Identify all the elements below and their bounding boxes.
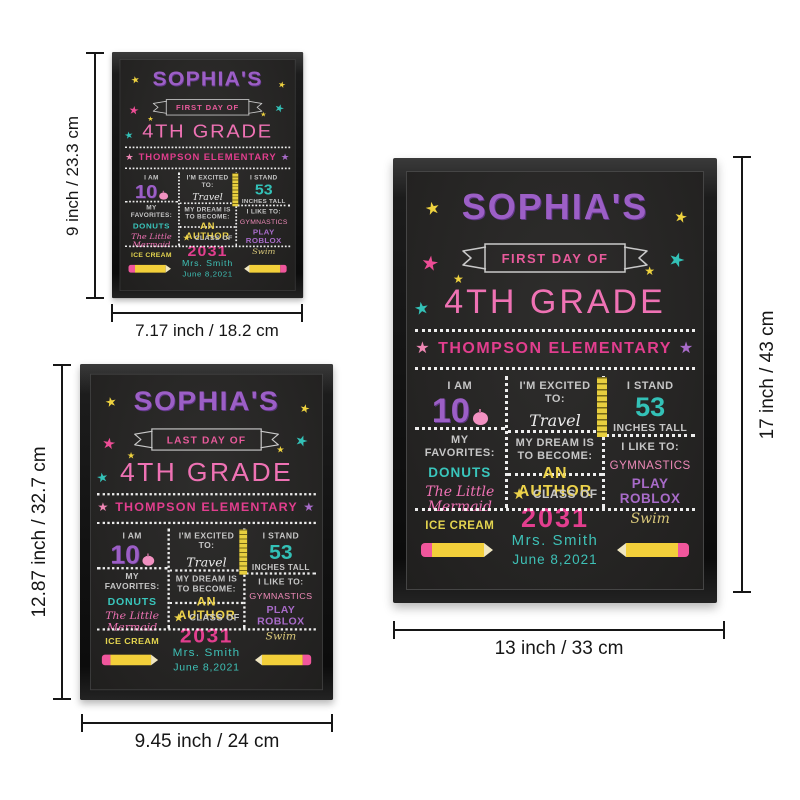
school-date: June 8,2021	[173, 662, 241, 673]
height-dimension-line-large: 17 inch / 43 cm	[741, 156, 743, 593]
star-icon: ★	[130, 74, 141, 85]
grid-column-right: I STAND 53 INCHES TALL I LIKE TO: GYMNAS…	[246, 528, 316, 628]
height-dimension-line-medium: 12.87 inch / 32.7 cm	[61, 364, 63, 700]
star-icon: ★	[298, 402, 311, 415]
star-icon: ★	[303, 502, 315, 515]
grid-column-left: I AM 10 MY FAVORITES: DONUTS The Little …	[415, 376, 505, 508]
school-date: June 8,2021	[512, 552, 599, 567]
like-item: GYMNASTICS	[610, 460, 691, 472]
height-value: 53	[255, 182, 273, 197]
star-icon: ★	[423, 199, 441, 219]
excited-box: I'M EXCITED TO: Travel	[180, 172, 236, 204]
star-icon: ★	[97, 502, 109, 515]
sign-medium: ★ ★ ★ ★ ★ ★ ★ SOPHIA'S LAST DAY OF 4TH G…	[80, 364, 333, 700]
child-name: SOPHIA'S	[125, 67, 290, 90]
grade-title: 4TH GRADE	[97, 459, 316, 488]
dotted-divider	[415, 329, 695, 332]
grid-column-middle: I'M EXCITED TO: Travel MY DREAM IS TO BE…	[178, 172, 237, 245]
school-date: June 8,2021	[182, 270, 233, 278]
school-name-row: ★THOMPSON ELEMENTARY★	[125, 152, 290, 163]
favorite-item: DONUTS	[133, 222, 170, 230]
star-icon: ★	[128, 104, 140, 116]
height-unit: INCHES TALL	[613, 422, 687, 435]
child-name: SOPHIA'S	[97, 385, 316, 416]
height-label: I STAND	[627, 380, 674, 393]
excited-box: I'M EXCITED TO: Travel	[508, 376, 603, 433]
school-name-row: ★THOMPSON ELEMENTARY★	[97, 501, 316, 515]
teacher-name: Mrs. Smith	[512, 532, 599, 549]
age-box: I AM 10	[125, 172, 178, 202]
height-dimension-label-large: 17 inch / 43 cm	[757, 310, 779, 439]
excited-box: I'M EXCITED TO: Travel	[169, 528, 243, 571]
excited-value: Travel	[186, 555, 226, 569]
star-icon: ★	[101, 436, 117, 453]
dotted-divider	[97, 522, 316, 524]
ribbon-banner: LAST DAY OF	[132, 428, 280, 452]
age-value: 10	[135, 183, 157, 201]
grid-column-left: I AM 10 MY FAVORITES: DONUTS The Little …	[125, 172, 178, 245]
age-box: I AM 10	[97, 528, 167, 569]
ruler-icon	[233, 173, 239, 206]
banner-label: FIRST DAY OF	[166, 100, 249, 115]
like-item: PLAY ROBLOX	[243, 228, 285, 245]
grid-column-right: I STAND 53 INCHES TALL I LIKE TO: GYMNAS…	[605, 376, 695, 508]
like-item: GYMNASTICS	[240, 219, 288, 226]
chalkboard: ★ ★ ★ ★ ★ ★ ★ SOPHIA'S FIRST DAY OF 4TH …	[406, 171, 704, 590]
grid-column-right: I STAND 53 INCHES TALL I LIKE TO: GYMNAS…	[237, 172, 290, 245]
apple-icon	[473, 412, 488, 425]
teacher-name: Mrs. Smith	[173, 647, 241, 660]
picture-frame: ★ ★ ★ ★ ★ ★ ★ SOPHIA'S LAST DAY OF 4TH G…	[80, 364, 333, 700]
dotted-divider	[125, 167, 290, 169]
school-name-row: ★THOMPSON ELEMENTARY★	[415, 339, 695, 358]
dotted-divider	[125, 147, 290, 149]
pencil-icon	[244, 265, 286, 273]
width-dimension-line-small: 7.17 inch / 18.2 cm	[111, 312, 303, 314]
favorite-item: DONUTS	[108, 595, 157, 606]
star-icon: ★	[277, 80, 287, 90]
school-name: THOMPSON ELEMENTARY	[438, 340, 672, 357]
banner-label: LAST DAY OF	[152, 429, 261, 450]
height-dimension-label-small: 9 inch / 23.3 cm	[63, 115, 83, 235]
likes-label: I LIKE TO:	[621, 441, 679, 454]
age-label: I AM	[447, 380, 472, 393]
height-value: 53	[635, 394, 665, 421]
school-name: THOMPSON ELEMENTARY	[115, 502, 298, 515]
width-dimension-line-medium: 9.45 inch / 24 cm	[81, 722, 333, 724]
excited-value: Travel	[529, 411, 580, 430]
pencil-icon	[102, 655, 158, 666]
dream-box: MY DREAM IS TO BECOME: AN AUTHOR	[169, 571, 243, 603]
star-icon: ★	[665, 249, 687, 272]
height-unit: INCHES TALL	[242, 198, 286, 205]
facts-grid: I AM 10 MY FAVORITES: DONUTS The Little …	[415, 376, 695, 508]
excited-label: I'M EXCITED TO:	[508, 380, 603, 406]
excited-value: Travel	[192, 192, 222, 203]
ribbon-banner: FIRST DAY OF	[460, 242, 650, 274]
signature-block: Mrs. Smith June 8,2021	[182, 259, 233, 278]
star-icon: ★	[453, 273, 464, 285]
dream-box: MY DREAM IS TO BECOME: AN AUTHOR	[508, 433, 603, 476]
child-name: SOPHIA'S	[415, 186, 695, 227]
sign-large: ★ ★ ★ ★ ★ ★ ★ SOPHIA'S FIRST DAY OF 4TH …	[393, 158, 717, 603]
chalkboard: ★ ★ ★ ★ ★ ★ ★ SOPHIA'S LAST DAY OF 4TH G…	[90, 374, 323, 690]
height-box: I STAND 53 INCHES TALL	[605, 376, 695, 438]
apple-icon	[159, 193, 168, 200]
width-dimension-label-medium: 9.45 inch / 24 cm	[135, 731, 280, 753]
picture-frame: ★ ★ ★ ★ ★ ★ ★ SOPHIA'S FIRST DAY OF 4TH …	[393, 158, 717, 603]
star-icon: ★	[512, 487, 525, 502]
sign-small: ★ ★ ★ ★ ★ ★ ★ SOPHIA'S FIRST DAY OF 4TH …	[112, 52, 303, 298]
chalkboard: ★ ★ ★ ★ ★ ★ ★ SOPHIA'S FIRST DAY OF 4TH …	[120, 59, 296, 291]
dream-label: MY DREAM IS TO BECOME:	[169, 574, 243, 594]
class-label: CLASS OF	[533, 487, 598, 501]
height-value: 53	[269, 542, 292, 562]
like-item: PLAY ROBLOX	[614, 476, 686, 507]
favorites-label: MY FAVORITES:	[125, 205, 178, 220]
like-item: GYMNASTICS	[249, 592, 312, 601]
height-unit: INCHES TALL	[252, 563, 310, 573]
grade-title: 4TH GRADE	[125, 121, 290, 142]
board-footer: Mrs. Smith June 8,2021	[125, 247, 290, 290]
picture-frame: ★ ★ ★ ★ ★ ★ ★ SOPHIA'S FIRST DAY OF 4TH …	[112, 52, 303, 298]
age-value: 10	[110, 543, 140, 567]
ruler-icon	[597, 377, 607, 437]
star-icon: ★	[125, 153, 134, 162]
star-icon: ★	[415, 340, 431, 357]
star-icon: ★	[293, 433, 310, 451]
star-icon: ★	[147, 116, 153, 123]
height-dimension-label-medium: 12.87 inch / 32.7 cm	[29, 446, 51, 617]
star-icon: ★	[413, 299, 431, 318]
height-box: I STAND 53 INCHES TALL	[246, 528, 316, 575]
board-footer: Mrs. Smith June 8,2021	[97, 630, 316, 689]
grade-title: 4TH GRADE	[415, 283, 695, 321]
star-icon: ★	[281, 153, 290, 162]
height-dimension-line-small: 9 inch / 23.3 cm	[94, 52, 96, 299]
star-icon: ★	[95, 470, 109, 485]
class-label: CLASS OF	[195, 234, 233, 242]
facts-grid: I AM 10 MY FAVORITES: DONUTS The Little …	[125, 172, 290, 245]
age-box: I AM 10	[415, 376, 505, 430]
like-item: PLAY ROBLOX	[253, 604, 309, 627]
age-value: 10	[432, 395, 470, 427]
star-icon: ★	[104, 395, 118, 410]
dream-box: MY DREAM IS TO BECOME: AN AUTHOR	[180, 204, 236, 228]
ribbon-banner: FIRST DAY OF	[152, 99, 264, 117]
star-icon: ★	[679, 340, 695, 357]
width-dimension-label-large: 13 inch / 33 cm	[495, 638, 624, 660]
favorites-label: MY FAVORITES:	[415, 434, 505, 460]
dream-label: MY DREAM IS TO BECOME:	[180, 206, 236, 221]
dotted-divider	[97, 493, 316, 495]
pencil-icon	[617, 543, 689, 557]
favorites-label: MY FAVORITES:	[97, 572, 167, 592]
pencil-icon	[255, 655, 311, 666]
star-icon: ★	[173, 612, 184, 623]
school-name: THOMPSON ELEMENTARY	[139, 153, 277, 162]
star-icon: ★	[273, 102, 286, 115]
excited-label: I'M EXCITED TO:	[169, 531, 243, 551]
dream-label: MY DREAM IS TO BECOME:	[508, 437, 603, 463]
facts-grid: I AM 10 MY FAVORITES: DONUTS The Little …	[97, 528, 316, 628]
ruler-icon	[240, 529, 248, 574]
likes-label: I LIKE TO:	[247, 209, 281, 216]
board-footer: Mrs. Smith June 8,2021	[415, 511, 695, 589]
star-icon: ★	[672, 209, 688, 226]
signature-block: Mrs. Smith June 8,2021	[173, 647, 241, 673]
star-icon: ★	[182, 234, 190, 242]
signature-block: Mrs. Smith June 8,2021	[512, 532, 599, 567]
class-label: CLASS OF	[189, 612, 240, 623]
banner-label: FIRST DAY OF	[485, 244, 625, 272]
height-box: I STAND 53 INCHES TALL	[237, 172, 290, 206]
pencil-icon	[129, 265, 171, 273]
star-icon: ★	[420, 253, 441, 275]
width-dimension-label-small: 7.17 inch / 18.2 cm	[135, 321, 279, 341]
excited-label: I'M EXCITED TO:	[180, 175, 236, 190]
star-icon: ★	[127, 451, 135, 460]
apple-icon	[142, 556, 154, 566]
grid-column-middle: I'M EXCITED TO: Travel MY DREAM IS TO BE…	[167, 528, 246, 628]
dotted-divider	[415, 367, 695, 370]
favorite-item: DONUTS	[428, 465, 491, 480]
pencil-icon	[421, 543, 493, 557]
grid-column-left: I AM 10 MY FAVORITES: DONUTS The Little …	[97, 528, 167, 628]
teacher-name: Mrs. Smith	[182, 259, 233, 268]
grid-column-middle: I'M EXCITED TO: Travel MY DREAM IS TO BE…	[505, 376, 606, 508]
width-dimension-line-large: 13 inch / 33 cm	[393, 629, 725, 631]
star-icon: ★	[124, 130, 135, 141]
likes-label: I LIKE TO:	[258, 578, 303, 588]
